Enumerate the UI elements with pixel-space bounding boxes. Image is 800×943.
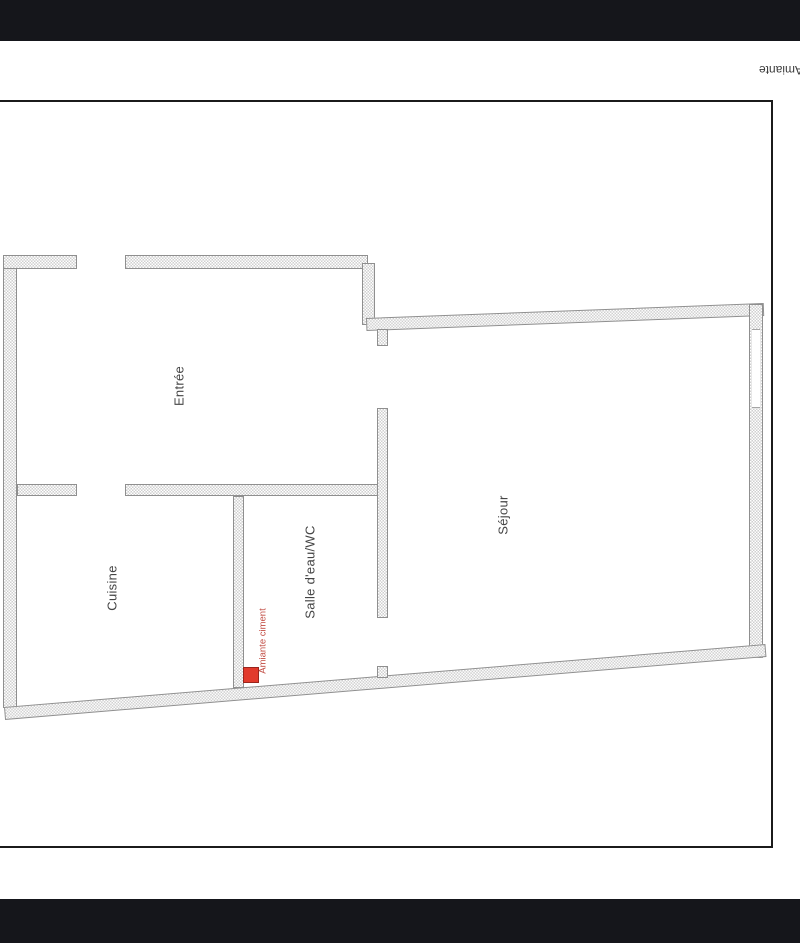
wall-interior-sejour-west-stub-bottom: [377, 666, 388, 678]
floor-plan: Entrée Cuisine Salle d'eau/WC Séjour Ami…: [0, 0, 800, 943]
room-label-sejour: Séjour: [496, 495, 511, 534]
room-label-salle-eau-wc: Salle d'eau/WC: [303, 525, 318, 618]
room-label-entree: Entrée: [172, 366, 187, 406]
page: Amiante Entrée Cuisine Salle d'eau/WC Sé…: [0, 0, 800, 943]
wall-interior-cuisine-salle-divider: [233, 496, 244, 688]
room-label-cuisine: Cuisine: [105, 565, 120, 610]
wall-interior-sejour-west-stub-top: [377, 329, 388, 346]
wall-exterior-top-segment-a: [3, 255, 77, 269]
wall-exterior-sejour-top: [366, 303, 764, 331]
wall-interior-sejour-west-main: [377, 408, 388, 618]
wall-exterior-connector-vertical: [362, 263, 375, 325]
wall-exterior-bottom-slanted: [4, 644, 766, 720]
asbestos-annotation-label: Amiante ciment: [258, 608, 269, 673]
wall-exterior-left: [3, 255, 17, 708]
wall-interior-entree-segment-a: [17, 484, 77, 496]
wall-exterior-top-segment-b: [125, 255, 368, 269]
wall-interior-entree-segment-b: [125, 484, 378, 496]
window-right-wall: [752, 329, 760, 408]
wall-exterior-right: [749, 304, 763, 658]
